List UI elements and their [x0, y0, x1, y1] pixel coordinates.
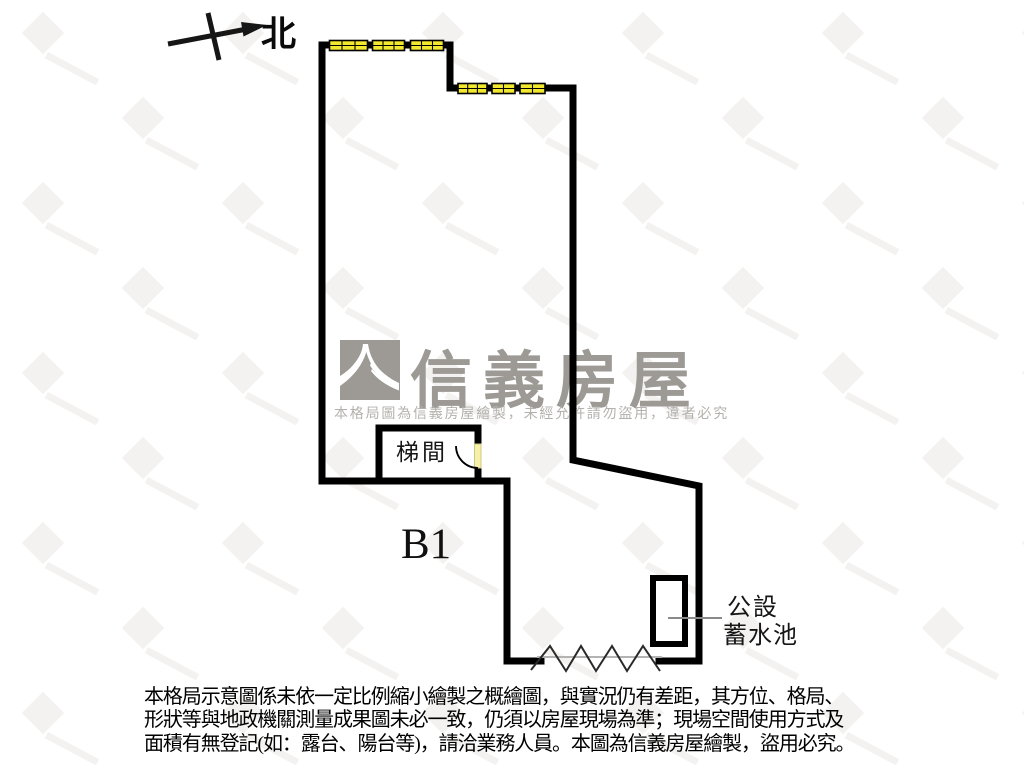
stairwell-door: [456, 444, 481, 468]
north-label: 北: [261, 6, 296, 57]
water-tank: [653, 578, 722, 644]
floor-plan-drawing: [0, 0, 1024, 768]
disclaimer-line-1: 本格局示意圖係未依一定比例縮小繪製之概繪圖，與實況仍有差距，其方位、格局、: [144, 686, 894, 709]
window-band-top-right: [458, 84, 545, 94]
disclaimer-line-3: 面積有無登記(如：露台、陽台等)，請洽業務人員。本圖為信義房屋繪製，盜用必究。: [144, 733, 894, 756]
door-leaf: [475, 444, 482, 468]
wall-break-zigzag: [531, 646, 662, 671]
disclaimer-text: 本格局示意圖係未依一定比例縮小繪製之概繪圖，與實況仍有差距，其方位、格局、 形狀…: [144, 686, 894, 756]
floor-plan-page: 信義房屋 本格局圖為信義房屋繪製，未經允許請勿盜用，違者必究: [0, 0, 1024, 768]
window-band-top-left: [330, 41, 444, 51]
disclaimer-line-2: 形狀等與地政機關測量成果圖未必一致，仍須以房屋現場為準；現場空間使用方式及: [144, 709, 894, 732]
north-arrow: [168, 13, 267, 60]
tank-label-line2: 蓄水池: [723, 615, 798, 650]
brand-logo-mark: [340, 340, 400, 400]
stairwell-label: 梯間: [396, 433, 448, 467]
floor-level-label: B1: [401, 520, 451, 569]
